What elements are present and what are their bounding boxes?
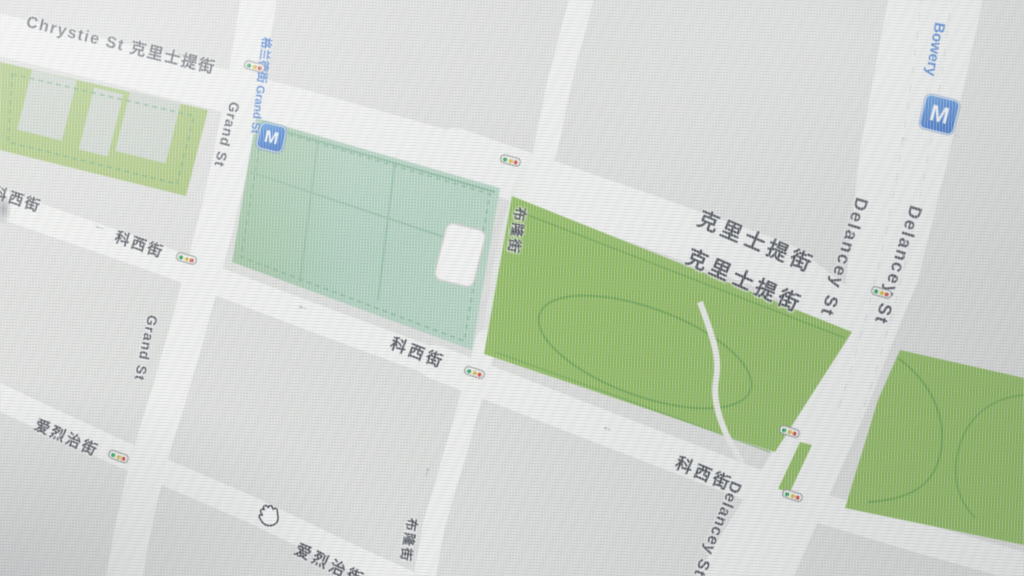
map-screen: Chrystie St 克里士提街 克里士提街 克里士提街 Grand St G… — [0, 0, 1024, 576]
map-geometry[interactable] — [0, 0, 1024, 576]
map-canvas[interactable]: Chrystie St 克里士提街 克里士提街 克里士提街 Grand St G… — [0, 0, 1024, 576]
